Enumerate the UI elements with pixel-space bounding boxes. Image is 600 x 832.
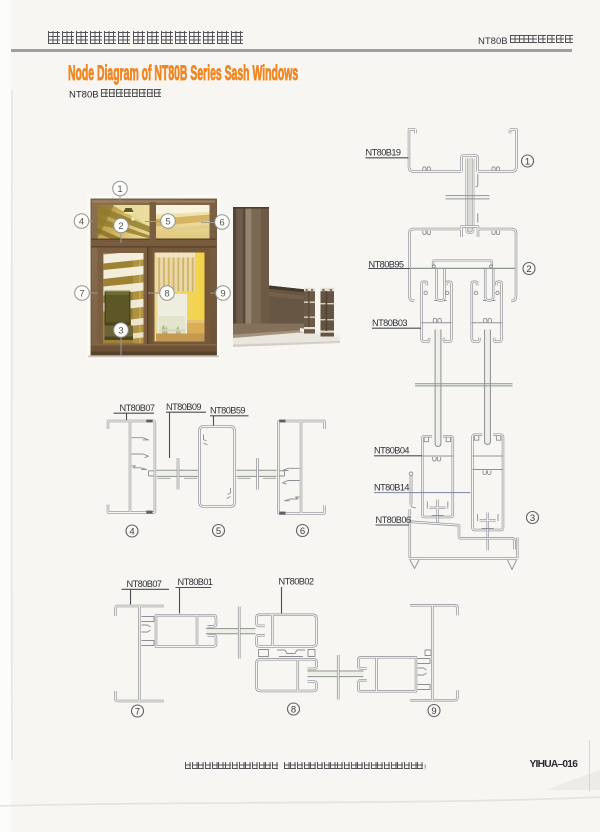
svg-text:8: 8 [164,289,169,300]
svg-text:2: 2 [526,264,531,275]
svg-text:NT80B59: NT80B59 [210,406,245,416]
svg-text:5: 5 [165,217,170,228]
svg-text:1: 1 [525,156,530,167]
svg-text:NT80B02: NT80B02 [279,577,314,587]
svg-text:3: 3 [118,326,123,337]
svg-text:6: 6 [300,526,305,537]
svg-text:6: 6 [219,218,224,229]
svg-text:9: 9 [431,706,436,717]
svg-text:7: 7 [135,706,140,717]
svg-text:NT80B03: NT80B03 [372,318,407,328]
svg-text:NT80B14: NT80B14 [374,483,409,493]
svg-text:NT80B06: NT80B06 [376,515,411,525]
svg-text:1: 1 [117,184,122,195]
svg-text:NT80B04: NT80B04 [374,446,409,456]
svg-text:NT80B01: NT80B01 [178,577,213,587]
svg-text:3: 3 [530,513,535,524]
svg-text:4: 4 [79,217,84,228]
svg-text:2: 2 [118,221,123,232]
svg-text:NT80B09: NT80B09 [166,402,201,412]
svg-text:9: 9 [220,289,225,300]
svg-text:7: 7 [79,289,84,300]
svg-text:4: 4 [129,526,134,537]
svg-text:NT80B19: NT80B19 [366,148,401,158]
svg-text:8: 8 [291,704,296,715]
svg-text:5: 5 [216,526,221,537]
svg-text:NT80B07: NT80B07 [127,579,162,589]
svg-text:NT80B07: NT80B07 [120,403,155,413]
